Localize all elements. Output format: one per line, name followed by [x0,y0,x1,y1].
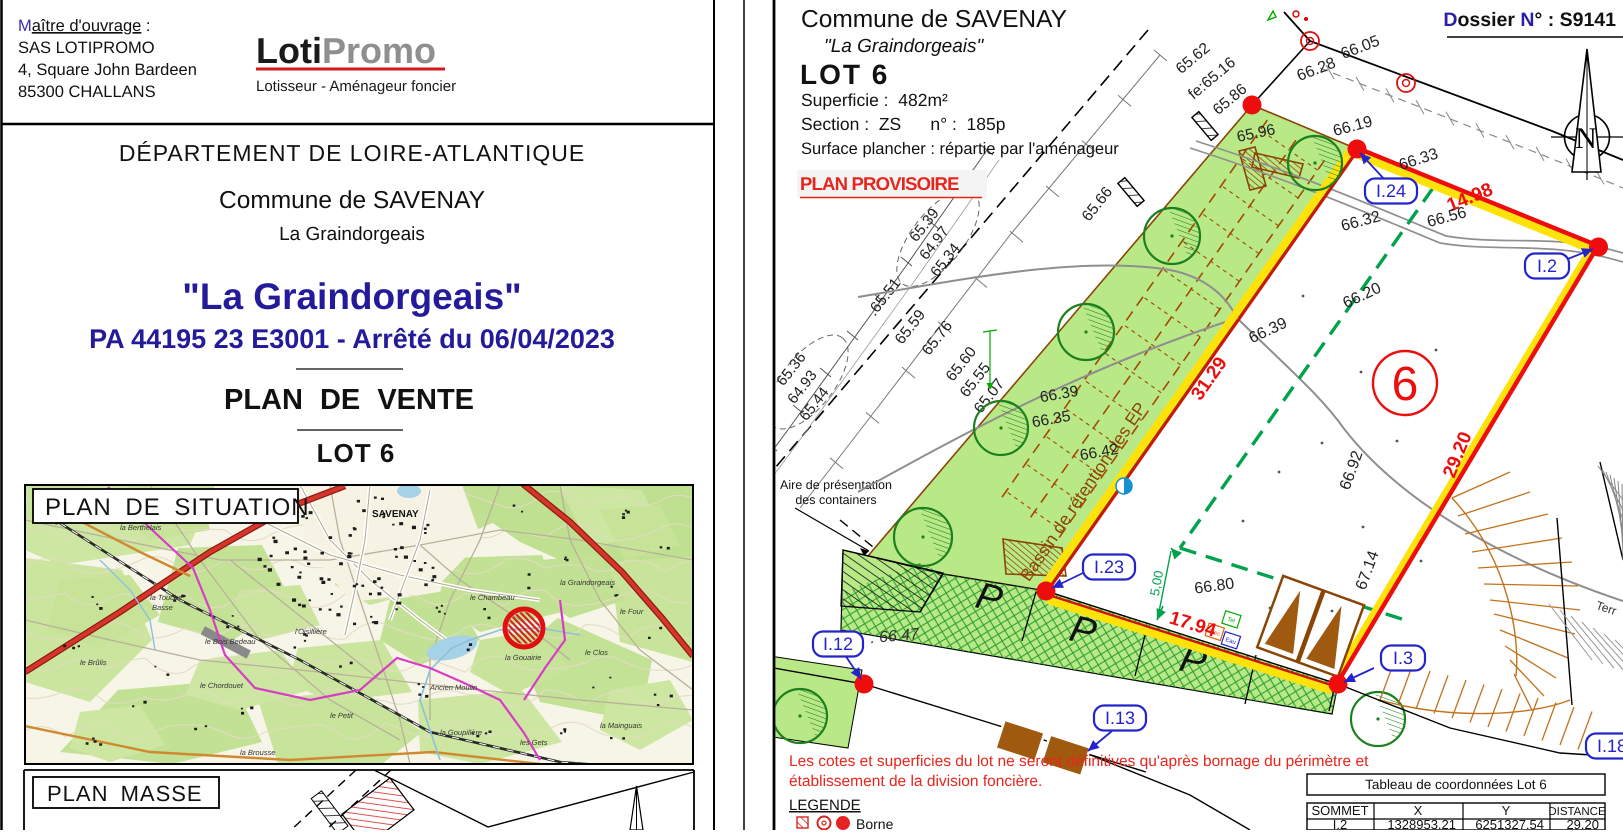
svg-text:66.05: 66.05 [1339,33,1383,63]
svg-text:LOT 6: LOT 6 [800,59,889,90]
svg-text:I.23: I.23 [1094,557,1124,577]
svg-text:.65.51: .65.51 [864,275,904,319]
svg-text:SOMMET: SOMMET [1311,803,1368,818]
svg-text:Lotisseur - Aménageur foncier: Lotisseur - Aménageur foncier [256,78,456,95]
svg-text:"La Graindorgeais": "La Graindorgeais" [824,36,985,57]
svg-text:la Brousse: la Brousse [240,748,275,757]
svg-text:Tableau de coordonnées Lot 6: Tableau de coordonnées Lot 6 [1365,777,1547,792]
svg-text:DÉPARTEMENT DE LOIRE-ATLANTIQU: DÉPARTEMENT DE LOIRE-ATLANTIQUE [119,140,585,166]
svg-text:le Bois Bedeau: le Bois Bedeau [205,637,256,646]
svg-text:67.14: 67.14 [1353,549,1383,593]
svg-text:Dossier N° : S9141: Dossier N° : S9141 [1443,9,1616,31]
svg-text:Section : ZS n° : 185p: Section : ZS n° : 185p [801,114,1005,134]
svg-text:Borne: Borne [856,816,894,830]
svg-text:Ancien Moulin: Ancien Moulin [429,683,477,692]
svg-text:6: 6 [1392,358,1419,411]
svg-text:85300 CHALLANS: 85300 CHALLANS [18,83,156,101]
svg-text:LEGENDE: LEGENDE [789,797,861,814]
svg-text:66.33: 66.33 [1397,145,1440,174]
svg-text:I.13: I.13 [1105,708,1135,728]
svg-text:66.39: 66.39 [1246,315,1290,347]
svg-text:Y: Y [1502,803,1511,818]
svg-text:Commune de SAVENAY: Commune de SAVENAY [219,187,485,214]
svg-text:66.19: 66.19 [1331,113,1374,140]
svg-text:le Petit: le Petit [330,711,354,720]
svg-text:le Clos: le Clos [585,648,608,657]
svg-text:PLAN PROVISOIRE: PLAN PROVISOIRE [800,173,959,194]
svg-text:4, Square John Bardeen: 4, Square John Bardeen [18,61,197,79]
svg-text:66.28: 66.28 [1295,55,1339,85]
svg-text:la Berthelais: la Berthelais [120,523,162,532]
svg-text:"La Graindorgeais": "La Graindorgeais" [182,276,521,317]
svg-text:I.18: I.18 [1597,736,1623,756]
svg-text:la Mainguais: la Mainguais [600,721,642,730]
svg-text:. 66.47: . 66.47 [869,626,920,647]
svg-text:Surface plancher : répartie pa: Surface plancher : répartie par l'aménag… [801,140,1119,158]
svg-text:l'Oisillière: l'Oisillière [295,627,327,636]
svg-text:Les cotes et superficies du lo: Les cotes et superficies du lot ne seron… [789,753,1369,770]
svg-text:SAS LOTIPROMO: SAS LOTIPROMO [18,39,155,57]
svg-text:65.76: 65.76 [919,318,956,359]
svg-text:Basse: Basse [152,603,173,612]
svg-text:29.20: 29.20 [1566,817,1599,830]
svg-text:Terr: Terr [1594,598,1618,618]
svg-text:LotiPromo: LotiPromo [256,30,436,71]
svg-text:66.32: 66.32 [1339,208,1382,235]
svg-text:SAVENAY: SAVENAY [372,509,419,520]
svg-text:les Gets: les Gets [520,738,548,747]
svg-text:I.2: I.2 [1333,817,1347,830]
svg-text:PLAN MASSE: PLAN MASSE [47,781,203,806]
svg-text:66.92: 66.92 [1337,449,1367,493]
svg-text:le Chordouet: le Chordouet [200,681,244,690]
svg-text:établissement de la division f: établissement de la division foncière. [789,773,1042,790]
svg-text:Maître d'ouvrage :: Maître d'ouvrage : [18,17,150,35]
svg-text:I.12: I.12 [823,634,853,654]
svg-text:6251327.54: 6251327.54 [1475,817,1544,830]
svg-text:I.2: I.2 [1537,256,1557,276]
svg-text:66.56: 66.56 [1425,204,1468,231]
svg-text:la Touche: la Touche [150,593,182,602]
svg-text:des containers: des containers [795,493,876,507]
svg-text:PLAN DE VENTE: PLAN DE VENTE [224,384,474,416]
svg-text:LOT 6: LOT 6 [317,438,396,468]
svg-text:I.3: I.3 [1393,648,1413,668]
svg-text:Aire de présentation: Aire de présentation [780,478,892,492]
svg-text:La Graindorgeais: La Graindorgeais [279,224,425,245]
svg-text:66.20: 66.20 [1340,280,1384,312]
svg-text:I.24: I.24 [1376,181,1406,201]
svg-text:PA 44195 23 E3001 - Arrêté du: PA 44195 23 E3001 - Arrêté du 06/04/2023 [89,324,615,354]
svg-text:Commune de SAVENAY: Commune de SAVENAY [801,6,1067,33]
svg-text:X: X [1414,803,1423,818]
svg-text:la Graindorgeais: la Graindorgeais [560,578,615,587]
svg-text:66.80: 66.80 [1193,575,1235,597]
svg-text:1328953.21: 1328953.21 [1387,817,1456,830]
svg-text:la Goupillère: la Goupillère [440,728,482,737]
svg-text:N: N [1575,122,1597,155]
svg-text:PLAN DE SITUATION: PLAN DE SITUATION [45,494,310,521]
svg-text:la Gouairie: la Gouairie [505,653,541,662]
svg-text:65.66: 65.66 [1079,184,1116,225]
svg-text:le Chambeau: le Chambeau [470,593,515,602]
svg-text:le Brûlis: le Brûlis [80,658,107,667]
svg-text:Superficie : 482m²: Superficie : 482m² [801,90,948,110]
svg-text:le Four: le Four [620,607,644,616]
